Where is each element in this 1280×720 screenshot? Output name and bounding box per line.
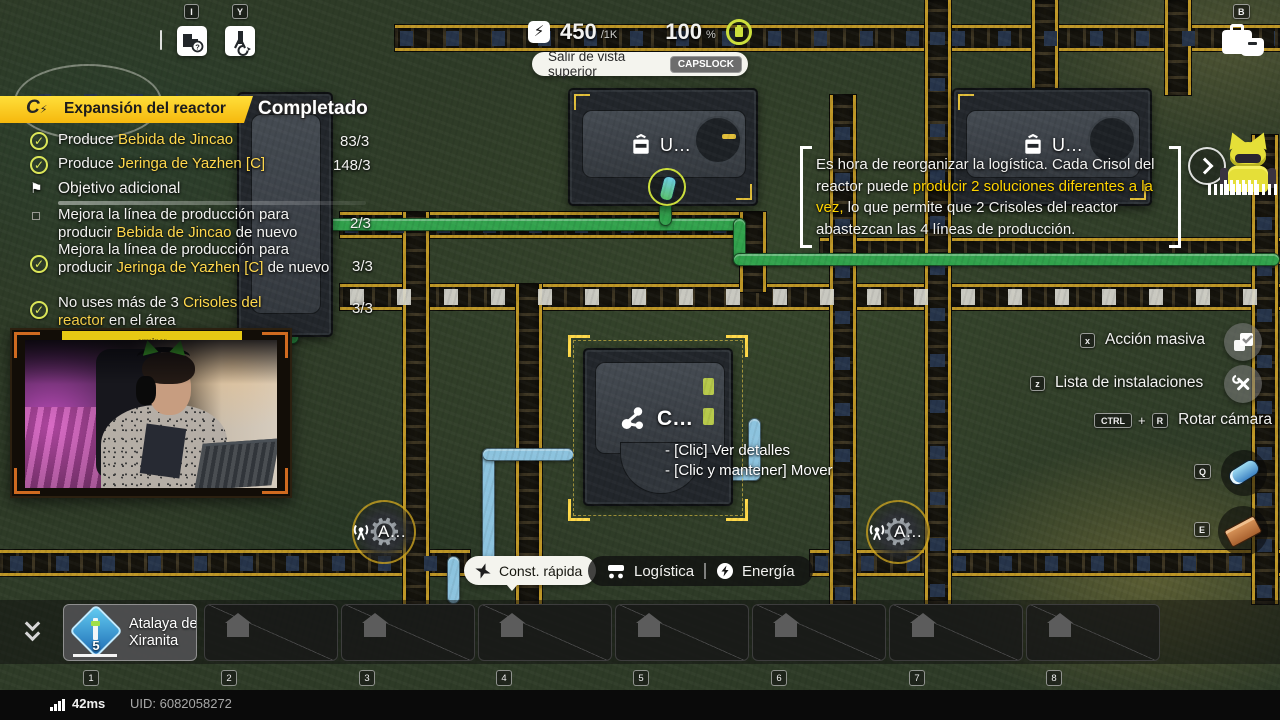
hotbar-key-7: 7 <box>909 670 925 686</box>
inspect-building-icon: ? <box>177 26 207 56</box>
view-mode-label: Salir de vista superior <box>548 49 670 79</box>
hotbar-key-8: 8 <box>1046 670 1062 686</box>
hotbar-slot-empty[interactable] <box>615 604 749 661</box>
charge-value: 100 <box>665 19 702 45</box>
rotate-camera-label: Rotar cámara <box>1178 411 1272 429</box>
antenna-icon <box>350 521 372 543</box>
battery-item-icon <box>1226 457 1262 488</box>
quest-title: Expansión del reactor <box>64 100 226 118</box>
watchtower-icon <box>225 26 255 56</box>
antenna-icon <box>866 521 888 543</box>
toolbar-divider <box>160 30 162 50</box>
hotbar-slot-empty[interactable] <box>1026 604 1160 661</box>
item-highlight-ring <box>648 168 686 206</box>
mass-action-hint: x Acción masiva <box>1080 331 1205 349</box>
solution-pipe[interactable] <box>733 253 1280 266</box>
key-badge-z: z <box>1030 376 1045 391</box>
audio-visualizer <box>1224 180 1258 195</box>
slot-count: 5 <box>78 638 114 653</box>
refinery-icon <box>1022 134 1044 156</box>
svg-text:?: ? <box>195 42 200 51</box>
key-badge-r: R <box>1152 413 1169 428</box>
check-icon: ✓ <box>30 156 48 174</box>
house-icon <box>501 623 523 637</box>
resource-bar: ⚡ 450 /1K 100 % <box>528 16 752 48</box>
video-top-shade <box>25 340 277 384</box>
selection-corner <box>568 335 590 357</box>
hotbar-slot-selected[interactable]: 5 Atalaya de Xiranita <box>63 604 197 661</box>
objective-progress: 83/3 <box>340 133 369 150</box>
additional-objective-header: ⚑ Objetivo adicional <box>30 180 330 198</box>
refinery-icon <box>630 134 652 156</box>
deposit-button[interactable] <box>1222 24 1266 56</box>
hotbar-key-3: 3 <box>359 670 375 686</box>
chevron-right-icon <box>1197 158 1214 175</box>
flag-plus-icon: ⚑ <box>30 180 48 197</box>
hotbar-slot-empty[interactable] <box>889 604 1023 661</box>
energy-tab[interactable]: Energía <box>716 562 795 580</box>
check-icon: ✓ <box>30 301 48 319</box>
belt-items <box>930 5 945 597</box>
house-icon <box>638 623 660 637</box>
water-pipe[interactable] <box>447 556 460 604</box>
hotbar-slot-empty[interactable] <box>478 604 612 661</box>
water-pipe[interactable] <box>482 448 574 461</box>
plate-item-icon <box>1224 515 1263 548</box>
house-icon <box>775 623 797 637</box>
key-badge-ctrl: CTRL <box>1094 413 1132 428</box>
hotbar-slot-empty[interactable] <box>752 604 886 661</box>
key-badge-deposit: B <box>1233 4 1250 19</box>
quest-logo-icon: C⚡ <box>26 97 47 119</box>
mass-action-label: Acción masiva <box>1105 331 1205 349</box>
key-badge-e: E <box>1194 522 1210 537</box>
hotbar-key-5: 5 <box>633 670 649 686</box>
quest-status: Completado <box>258 98 368 120</box>
power-value: 450 <box>560 19 597 45</box>
person-shirt <box>140 423 187 478</box>
capslock-key-badge: CAPSLOCK <box>670 56 742 73</box>
slot-label: Atalaya de Xiranita <box>129 616 197 650</box>
quick-build-pill[interactable]: Const. rápida <box>464 556 596 585</box>
quick-item-q[interactable] <box>1221 450 1267 496</box>
pill-divider <box>704 563 706 579</box>
quick-build-label: Const. rápida <box>499 563 582 579</box>
hotbar-key-1: 1 <box>83 670 99 686</box>
suitcase-handle <box>1230 24 1244 32</box>
game-screen: ⚙ ⚙ U… U… A… A… C… - [Clic] Ver detalles… <box>0 0 1280 720</box>
facility-list-label: Lista de instalaciones <box>1055 374 1203 392</box>
tooltip-bracket-left <box>800 146 809 248</box>
conveyor-icon <box>606 563 626 580</box>
key-badge-q: Q <box>1194 464 1211 479</box>
quick-build-star-icon <box>474 562 492 580</box>
check-icon: ✓ <box>30 255 48 273</box>
logistics-label: Logística <box>634 563 694 580</box>
signal-icon <box>50 699 66 711</box>
view-mode-banner: Salir de vista superior CAPSLOCK <box>532 52 748 76</box>
energy-icon <box>716 562 734 580</box>
webcam-banner: erminer <box>62 331 242 340</box>
wrench-icon <box>1231 372 1255 396</box>
hotbar-collapse-button[interactable] <box>24 616 44 644</box>
hotbar-slot-empty[interactable] <box>341 604 475 661</box>
quick-item-e[interactable] <box>1218 506 1268 556</box>
laptop <box>194 438 277 488</box>
hotbar-slot-empty[interactable] <box>204 604 338 661</box>
key-badge-x: x <box>1080 333 1095 348</box>
bed-stripes <box>25 407 106 488</box>
quick-build-pointer <box>506 584 518 591</box>
uid-value: UID: 6082058272 <box>130 696 232 711</box>
house-icon <box>364 623 386 637</box>
selection-corner <box>568 499 590 521</box>
hint-view-details: - [Clic] Ver detalles <box>665 442 833 459</box>
house-icon <box>1049 623 1071 637</box>
quest-objective: ✓ Produce Bebida de Jincao <box>30 131 330 150</box>
power-icon: ⚡ <box>528 21 550 43</box>
logistics-tab[interactable]: Logística <box>606 563 694 580</box>
molecule-icon <box>618 404 648 434</box>
machine-label-top: U… <box>630 134 691 156</box>
quest-objective: Mejora la línea de producción para produ… <box>30 206 340 241</box>
ping-value: 42ms <box>72 696 105 711</box>
key-badge-inspect: I <box>184 4 199 19</box>
hint-move: - [Clic y mantener] Mover <box>665 462 833 479</box>
building-tooltip-title: C… <box>657 407 693 431</box>
hotbar-key-6: 6 <box>771 670 787 686</box>
objective-progress: 3/3 <box>352 258 373 275</box>
inspect-mode-button[interactable]: ? <box>177 26 207 56</box>
slot-underline <box>73 654 117 657</box>
machine-label-right: U… <box>1022 134 1083 156</box>
multi-select-icon <box>1231 330 1255 354</box>
webcam-overlay: erminer <box>10 328 292 498</box>
build-category-pill: Logística Energía <box>588 556 813 586</box>
rotate-camera-hint: CTRL + R Rotar cámara <box>1094 411 1272 429</box>
tower-label-right: A… <box>866 521 922 543</box>
facility-list-hint: z Lista de instalaciones <box>1030 374 1203 392</box>
selection-corner <box>726 499 748 521</box>
hotbar-key-4: 4 <box>496 670 512 686</box>
check-icon: ✓ <box>30 132 48 150</box>
objective-progress: 2/3 <box>350 215 371 232</box>
building-tooltip: C… - [Clic] Ver detalles - [Clic y mante… <box>618 404 833 479</box>
conveyor-belt[interactable] <box>1165 0 1191 95</box>
objective-progress: 148/3 <box>333 157 371 174</box>
webcam-video <box>25 340 277 488</box>
bag-icon <box>1240 38 1264 56</box>
additional-objective-label: Objetivo adicional <box>58 180 180 198</box>
mass-action-button[interactable] <box>1224 323 1262 361</box>
quest-objective: ✓ No uses más de 3 Crisoles del reactor … <box>30 294 340 329</box>
plus-sign: + <box>1138 413 1146 428</box>
key-badge-tower: Y <box>232 4 248 19</box>
hotbar-key-2: 2 <box>221 670 237 686</box>
energy-label: Energía <box>742 563 795 580</box>
bag-slot <box>1248 42 1257 45</box>
quest-objective: ✓ Produce Jeringa de Yazhen [C] <box>30 155 330 174</box>
selection-corner <box>726 335 748 357</box>
quest-divider <box>58 201 366 205</box>
house-icon <box>227 623 249 637</box>
guide-tooltip: Es hora de reorganizar la logística. Cad… <box>816 154 1178 240</box>
battery-icon <box>726 19 752 45</box>
power-cap: /1K <box>601 29 618 41</box>
charge-unit: % <box>706 29 716 41</box>
tower-label-left: A… <box>350 521 406 543</box>
letterbox-bar: 42ms UID: 6082058272 <box>0 690 1280 720</box>
quest-objective: ✓ Mejora la línea de producción para pro… <box>30 241 340 276</box>
quest-header[interactable]: C⚡ Expansión del reactor <box>0 96 253 123</box>
watchtower-button[interactable] <box>225 26 255 56</box>
belt-items <box>350 289 1275 305</box>
house-icon <box>912 623 934 637</box>
objective-progress: 3/3 <box>352 300 373 317</box>
facility-list-button[interactable] <box>1224 365 1262 403</box>
